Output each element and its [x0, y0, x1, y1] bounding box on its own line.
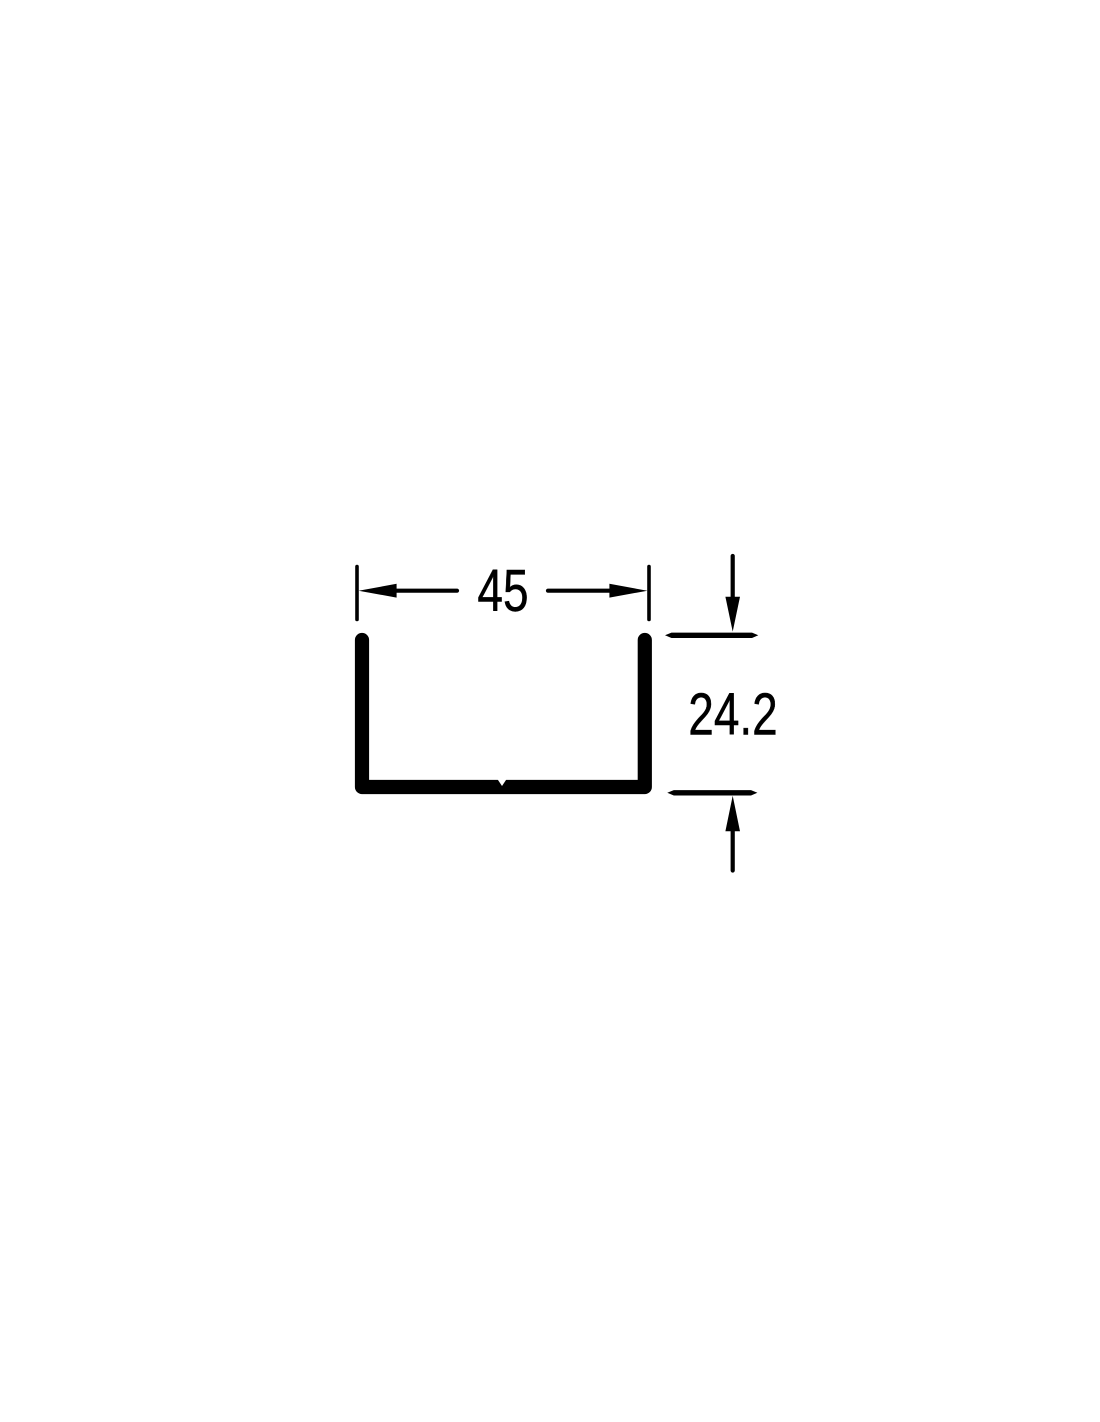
svg-text:24.2: 24.2: [688, 682, 778, 748]
svg-text:45: 45: [477, 559, 528, 625]
